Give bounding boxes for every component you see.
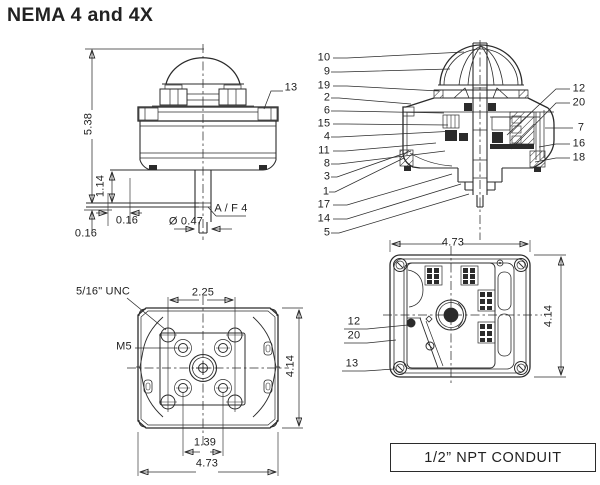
callout-13-side: 13 [285, 83, 298, 94]
callout-12-open: 12 [348, 317, 361, 328]
callout-13-open: 13 [346, 359, 359, 370]
label-thread-unc: 5/16" UNC [76, 287, 130, 298]
callout-8: 8 [324, 159, 330, 170]
callout-20: 20 [573, 98, 586, 109]
callout-4: 4 [324, 132, 330, 143]
callout-11: 11 [318, 146, 330, 157]
callout-6: 6 [324, 106, 330, 117]
callout-1: 1 [323, 187, 329, 198]
drawing-canvas: NEMA 4 and 4X 5.38 1.14 0.16 0.16 Ø 0.47… [0, 0, 600, 485]
dim-shaft-diameter: Ø 0.47 [169, 217, 203, 228]
callout-3: 3 [324, 172, 330, 183]
line-art [0, 0, 600, 485]
dim-across-flats: A / F 4 [214, 204, 247, 215]
callout-20-open: 20 [348, 331, 361, 342]
dim-bottom-depth: 4.14 [286, 355, 297, 377]
callout-7: 7 [578, 123, 584, 134]
label-thread-m5: M5 [116, 342, 132, 353]
dim-plate-offset: 0.16 [116, 216, 138, 227]
callout-2: 2 [324, 93, 330, 104]
dim-open-depth: 4.14 [544, 305, 555, 327]
callout-17: 17 [318, 200, 331, 211]
callout-18: 18 [573, 153, 586, 164]
page-title: NEMA 4 and 4X [7, 4, 153, 27]
conduit-note-label: 1/2” NPT CONDUIT [424, 450, 561, 466]
dim-overall-height: 5.38 [84, 113, 95, 135]
callout-14: 14 [318, 214, 331, 225]
callout-5: 5 [324, 228, 330, 239]
open-enclosure-top-view [342, 240, 566, 386]
dim-base-offset: 0.16 [75, 229, 97, 240]
callout-16: 16 [573, 139, 586, 150]
callout-10: 10 [318, 53, 331, 64]
callout-19: 19 [318, 81, 331, 92]
dim-bottom-width: 4.73 [196, 459, 218, 470]
conduit-note-box: 1/2” NPT CONDUIT [390, 443, 596, 472]
dim-bracket-height: 1.14 [96, 175, 107, 197]
dim-stud-spacing: 1.39 [194, 438, 216, 449]
callout-15: 15 [318, 119, 331, 130]
callout-12: 12 [573, 84, 586, 95]
dim-open-width: 4.73 [442, 238, 464, 249]
cutaway-section-view [329, 40, 573, 240]
callout-9: 9 [324, 67, 330, 78]
bottom-mounting-view [127, 296, 303, 476]
side-elevation-view [84, 44, 283, 240]
dim-bolt-spacing: 2.25 [192, 288, 214, 299]
